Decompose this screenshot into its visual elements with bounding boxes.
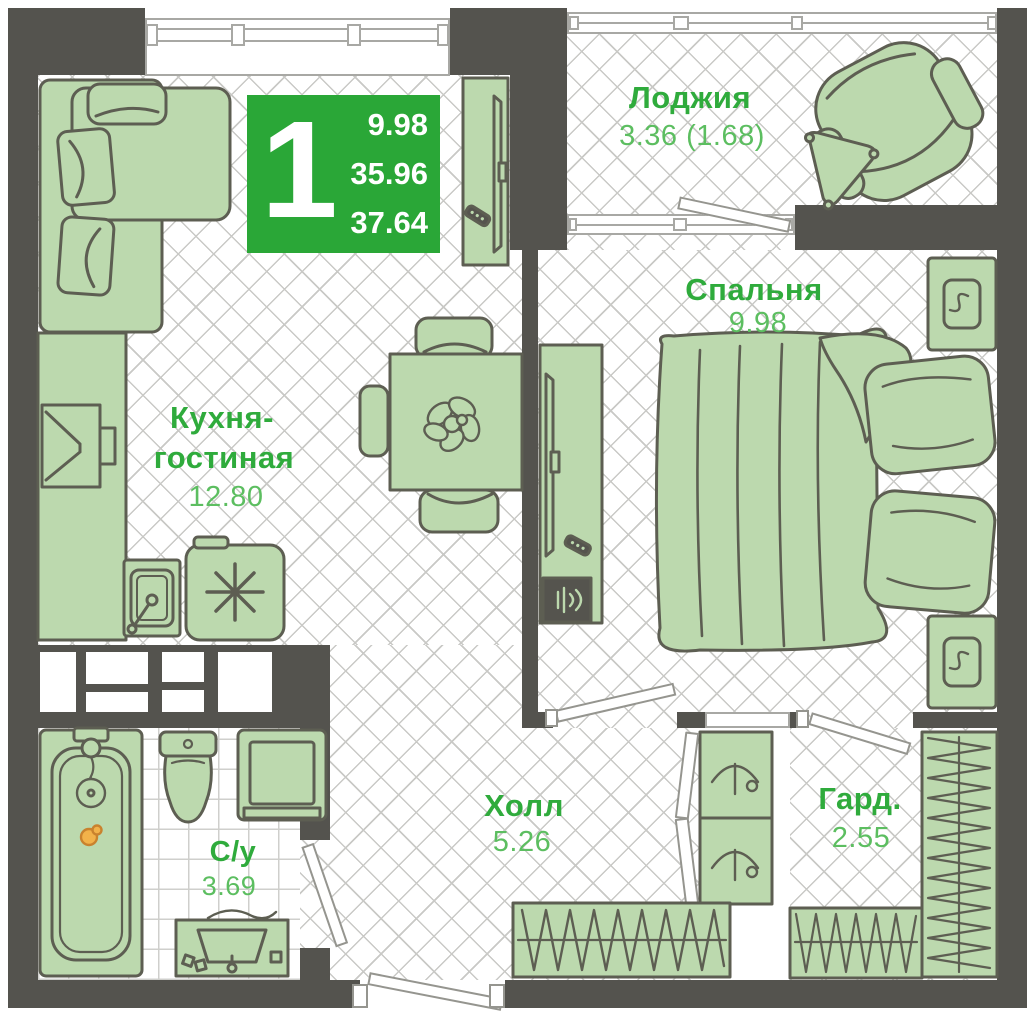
wall [913, 712, 997, 728]
label-kitchen-line1: Кухня- [72, 400, 372, 436]
window-glass [146, 28, 449, 42]
door-jamb [489, 984, 505, 1008]
label-loggia: Лоджия [540, 80, 840, 116]
window-mullion [673, 218, 687, 231]
label-kitchen-line2: гостиная [74, 440, 374, 476]
window-glass [569, 22, 995, 24]
wall [997, 8, 1027, 1008]
wall [300, 948, 330, 980]
area-bathroom: 3.69 [79, 871, 379, 902]
wall [522, 230, 538, 712]
apartment-badge: 1 9.98 35.96 37.64 [247, 95, 440, 253]
floor-plan: 1 9.98 35.96 37.64 Лоджия 3.36 (1.68) Сп… [0, 0, 1035, 1035]
shaft-niche [86, 652, 148, 684]
wall [8, 980, 360, 1008]
shaft-niche [162, 652, 204, 682]
wall [300, 728, 330, 840]
label-bathroom: С/у [83, 836, 383, 869]
label-wardrobe: Гард. [710, 781, 1010, 817]
door-jamb [545, 709, 558, 727]
door-jamb [352, 984, 368, 1008]
badge-area-usable: 35.96 [350, 156, 428, 192]
closet-track [705, 712, 790, 728]
wall [450, 8, 567, 75]
shaft-niche [218, 652, 272, 712]
area-loggia: 3.36 (1.68) [542, 120, 842, 153]
label-bedroom: Спальня [604, 272, 904, 308]
coat-closet [700, 732, 772, 904]
area-hall: 5.26 [372, 826, 672, 859]
wall [795, 205, 997, 250]
window-mullion [347, 24, 361, 46]
wall [505, 980, 1027, 1008]
window-living [145, 18, 450, 76]
window-mullion [791, 16, 803, 30]
area-bedroom: 9.98 [608, 307, 908, 340]
shaft-niche [40, 652, 76, 712]
window-mullion [146, 24, 158, 46]
shaft-niche [162, 690, 204, 712]
window-mullion [987, 16, 997, 30]
window-mullion [569, 16, 579, 30]
room-count: 1 [261, 101, 338, 239]
area-wardrobe: 2.55 [711, 822, 1011, 855]
badge-area-total: 37.64 [350, 205, 428, 241]
badge-areas: 9.98 35.96 37.64 [350, 107, 428, 241]
window-mullion [673, 16, 689, 30]
window-loggia [567, 12, 997, 34]
shaft-niche [86, 692, 148, 712]
area-kitchen: 12.80 [76, 481, 376, 514]
label-hall: Холл [374, 788, 674, 824]
badge-area-living: 9.98 [350, 107, 428, 143]
window-mullion [437, 24, 449, 46]
wall [8, 8, 145, 75]
wall [8, 75, 38, 1008]
window-mullion [569, 218, 577, 231]
wall [677, 712, 705, 728]
door-jamb [796, 710, 809, 728]
window-mullion [231, 24, 245, 46]
